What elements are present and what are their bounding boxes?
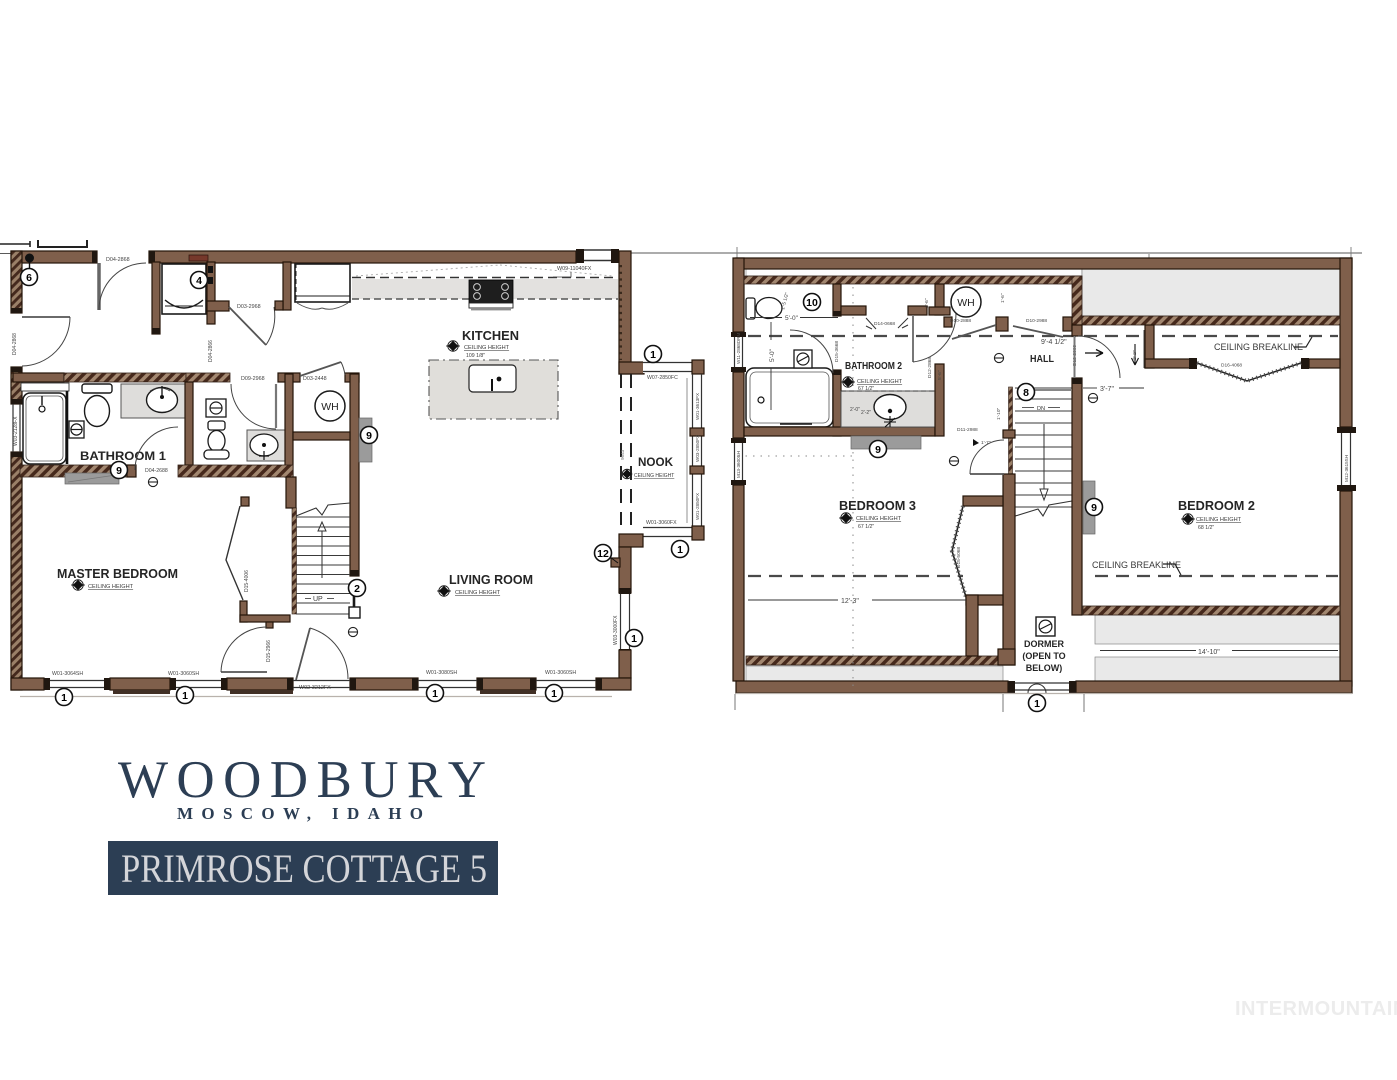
svg-text:9: 9 — [116, 465, 122, 477]
svg-text:5'-6": 5'-6" — [937, 370, 943, 380]
svg-text:9: 9 — [1091, 502, 1097, 514]
svg-text:W01-3064SH: W01-3064SH — [52, 671, 83, 677]
svg-text:W11-2868DRM: W11-2868DRM — [736, 333, 741, 364]
svg-text:109 1/8": 109 1/8" — [466, 353, 485, 359]
svg-text:9'-4 1/2": 9'-4 1/2" — [1041, 339, 1067, 346]
svg-text:M13-3600SH: M13-3600SH — [736, 451, 741, 478]
svg-text:D12-2868: D12-2868 — [927, 357, 933, 378]
svg-text:W01-3060SH: W01-3060SH — [545, 670, 576, 676]
svg-text:MASTER BEDROOM: MASTER BEDROOM — [57, 566, 178, 581]
svg-text:D04-2868: D04-2868 — [12, 333, 18, 355]
svg-text:NOOK: NOOK — [638, 457, 674, 469]
svg-text:1'-10": 1'-10" — [996, 407, 1002, 420]
svg-text:1: 1 — [650, 349, 656, 361]
svg-text:9643: 9643 — [620, 449, 625, 460]
svg-text:1'-6": 1'-6" — [924, 298, 930, 308]
svg-text:D15-4006: D15-4006 — [244, 570, 250, 592]
svg-text:D14-0668: D14-0668 — [874, 321, 895, 327]
svg-text:HALL: HALL — [1030, 353, 1054, 365]
svg-text:14'-10": 14'-10" — [1198, 649, 1220, 656]
svg-text:CEILING HEIGHT: CEILING HEIGHT — [455, 590, 501, 596]
svg-text:BATHROOM 1: BATHROOM 1 — [80, 451, 167, 463]
svg-text:W09-11040FX: W09-11040FX — [557, 266, 592, 272]
svg-text:D04-2866: D04-2866 — [208, 340, 214, 362]
svg-text:1: 1 — [432, 688, 438, 700]
svg-text:68 1/2": 68 1/2" — [1198, 525, 1214, 531]
svg-text:CEILING HEIGHT: CEILING HEIGHT — [634, 473, 674, 479]
svg-text:D03-2968: D03-2968 — [237, 304, 261, 310]
svg-text:6: 6 — [26, 272, 32, 284]
svg-text:1: 1 — [631, 633, 637, 645]
svg-text:1: 1 — [182, 690, 188, 702]
svg-text:1: 1 — [551, 688, 557, 700]
svg-text:DN: DN — [1037, 406, 1045, 412]
svg-text:5'-0": 5'-0" — [769, 348, 776, 362]
svg-text:BELOW): BELOW) — [1026, 663, 1063, 673]
svg-text:BEDROOM 3: BEDROOM 3 — [839, 499, 916, 513]
svg-text:PRIMROSE COTTAGE 5: PRIMROSE COTTAGE 5 — [121, 846, 487, 891]
svg-text:W01-2850FX: W01-2850FX — [695, 493, 700, 520]
svg-text:9: 9 — [366, 430, 372, 442]
svg-text:4: 4 — [196, 275, 202, 287]
svg-text:D15-5068: D15-5068 — [956, 547, 962, 568]
svg-text:10: 10 — [806, 297, 818, 309]
svg-text:WH: WH — [957, 297, 975, 309]
svg-text:W01-3060FX: W01-3060FX — [646, 520, 677, 526]
svg-text:CEILING HEIGHT: CEILING HEIGHT — [88, 584, 134, 590]
svg-text:W01-3060SH: W01-3060SH — [168, 671, 199, 677]
svg-text:M12-3615SH: M12-3615SH — [1344, 455, 1349, 482]
svg-text:D04-2688: D04-2688 — [145, 468, 168, 474]
svg-text:67 1/2": 67 1/2" — [858, 386, 874, 392]
svg-text:2'-0": 2'-0" — [850, 407, 860, 413]
svg-text:DORMER: DORMER — [1024, 639, 1064, 649]
svg-text:KITCHEN: KITCHEN — [462, 328, 519, 343]
svg-text:W03-2850FX: W03-2850FX — [695, 435, 700, 462]
svg-text:D16-4068: D16-4068 — [1221, 363, 1242, 369]
svg-text:W03-2128FX: W03-2128FX — [13, 416, 19, 446]
svg-text:D15-2966: D15-2966 — [266, 640, 272, 662]
svg-text:LIVING ROOM: LIVING ROOM — [449, 572, 533, 587]
svg-text:UP: UP — [313, 596, 323, 603]
svg-text:D11-2988: D11-2988 — [957, 427, 978, 433]
svg-text:CEILING BREAKLINE: CEILING BREAKLINE — [1214, 342, 1303, 352]
svg-text:CEILING HEIGHT: CEILING HEIGHT — [464, 345, 510, 351]
svg-text:WH: WH — [321, 401, 339, 413]
svg-text:D10-2988: D10-2988 — [1026, 318, 1047, 324]
svg-text:12: 12 — [597, 548, 609, 560]
svg-text:CEILING HEIGHT: CEILING HEIGHT — [856, 516, 902, 522]
svg-text:(OPEN TO: (OPEN TO — [1022, 651, 1065, 661]
svg-text:CEILING BREAKLINE: CEILING BREAKLINE — [1092, 560, 1181, 570]
svg-text:INTERMOUNTAIN: INTERMOUNTAIN — [1235, 998, 1397, 1020]
svg-text:1: 1 — [1034, 698, 1040, 710]
svg-text:BEDROOM 2: BEDROOM 2 — [1178, 499, 1255, 513]
svg-text:D03-2448: D03-2448 — [303, 376, 327, 382]
svg-text:8: 8 — [1023, 387, 1029, 399]
svg-text:5'-0": 5'-0" — [785, 315, 799, 322]
svg-text:1: 1 — [61, 692, 67, 704]
svg-text:BATHROOM 2: BATHROOM 2 — [845, 361, 902, 372]
svg-text:CEILING HEIGHT: CEILING HEIGHT — [1196, 517, 1242, 523]
svg-text:W03-3000FX: W03-3000FX — [613, 615, 619, 645]
svg-text:1'-7": 1'-7" — [981, 440, 991, 446]
svg-text:D15-3668: D15-3668 — [834, 341, 840, 362]
svg-text:1: 1 — [677, 544, 683, 556]
svg-text:D09-2968: D09-2968 — [241, 376, 265, 382]
svg-text:W01-3613FX: W01-3613FX — [695, 393, 700, 420]
svg-text:3'-7": 3'-7" — [1100, 386, 1114, 393]
svg-text:1'-6": 1'-6" — [1000, 293, 1006, 303]
svg-text:D10-2888: D10-2888 — [950, 318, 971, 324]
svg-text:W07-2850FC: W07-2850FC — [647, 375, 678, 381]
svg-text:W01-3080SH: W01-3080SH — [426, 670, 457, 676]
svg-text:67 1/2": 67 1/2" — [858, 524, 874, 530]
svg-text:D04-2868: D04-2868 — [106, 257, 130, 263]
svg-text:12'-3": 12'-3" — [841, 598, 859, 605]
svg-text:W02-3212FX: W02-3212FX — [299, 685, 331, 691]
svg-text:2: 2 — [354, 583, 360, 595]
svg-text:2'-2": 2'-2" — [861, 410, 871, 416]
svg-text:9: 9 — [875, 444, 881, 456]
svg-text:CEILING HEIGHT: CEILING HEIGHT — [857, 379, 903, 385]
svg-text:2'-2": 2'-2" — [1132, 350, 1138, 360]
